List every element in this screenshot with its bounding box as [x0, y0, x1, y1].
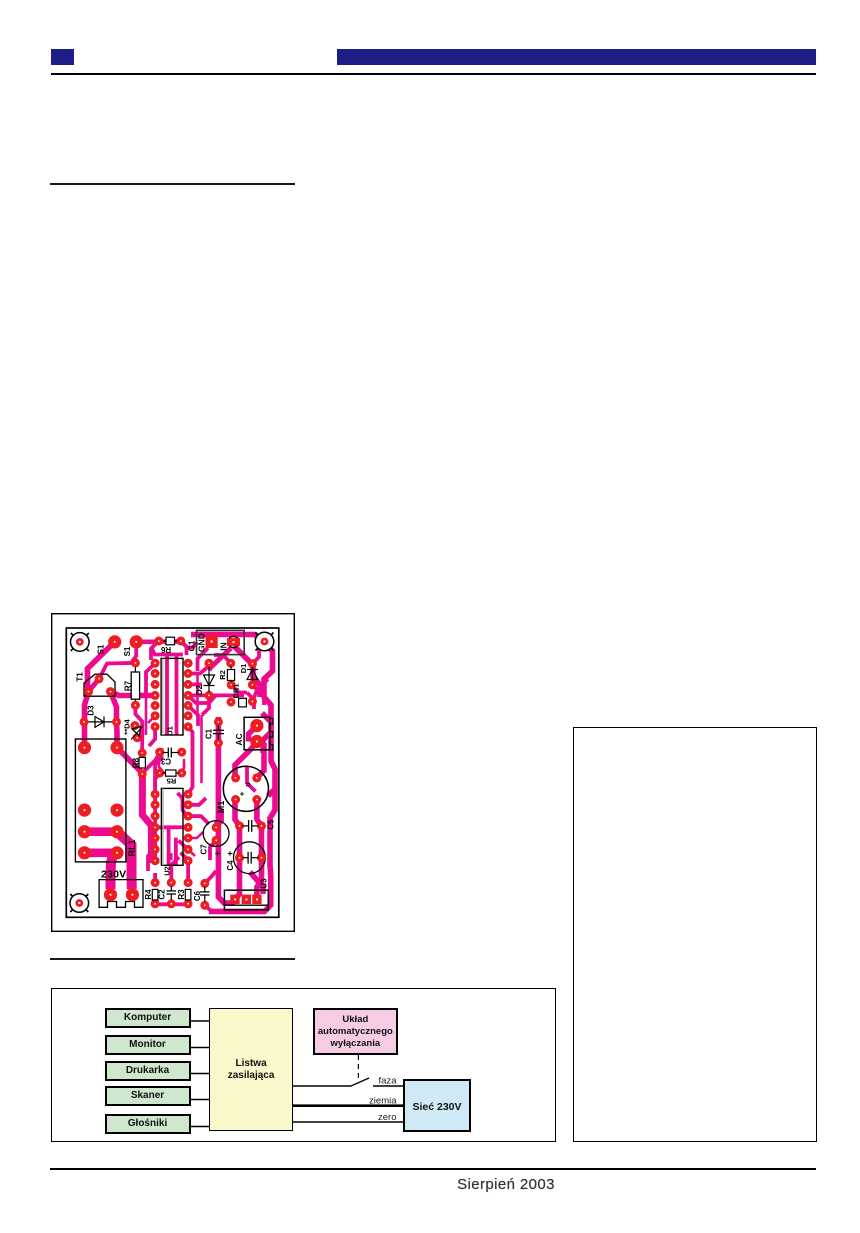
- svg-text:C2: C2: [158, 889, 167, 900]
- svg-text:C6: C6: [193, 890, 202, 901]
- svg-text:AC: AC: [234, 733, 244, 745]
- svg-text:+: +: [240, 790, 245, 799]
- svg-text:DR1: DR1: [232, 683, 241, 698]
- svg-text:GND: GND: [197, 633, 207, 652]
- svg-text:+: +: [225, 851, 235, 856]
- svg-text:M1: M1: [216, 801, 226, 814]
- svg-text:R5: R5: [167, 777, 177, 786]
- svg-text:C7: C7: [200, 844, 209, 855]
- svg-text:R7: R7: [124, 680, 133, 691]
- svg-text:D3: D3: [87, 705, 96, 716]
- svg-text:D1: D1: [239, 664, 248, 674]
- svg-text:S1: S1: [97, 644, 106, 654]
- svg-text:zero: zero: [378, 1112, 396, 1123]
- svg-text:R6: R6: [160, 645, 171, 654]
- svg-text:U3: U3: [260, 878, 269, 889]
- svg-text:R3: R3: [177, 889, 186, 900]
- svg-text:R4: R4: [144, 889, 153, 900]
- svg-text:U1: U1: [166, 726, 175, 736]
- svg-text:U2: U2: [163, 866, 172, 876]
- svg-text:IN: IN: [218, 642, 228, 651]
- svg-text:C4: C4: [226, 860, 235, 871]
- svg-text:230V: 230V: [101, 868, 126, 880]
- svg-text:R2: R2: [218, 670, 227, 680]
- svg-text:ziemia: ziemia: [369, 1096, 397, 1107]
- svg-text:T1: T1: [76, 672, 85, 682]
- svg-text:RL1: RL1: [127, 839, 137, 856]
- svg-text:D2: D2: [195, 684, 204, 695]
- svg-text:R8: R8: [132, 757, 141, 768]
- svg-text:C5: C5: [267, 819, 276, 830]
- svg-text:G1: G1: [187, 640, 196, 651]
- svg-text:**D4: **D4: [123, 718, 132, 734]
- svg-text:C3: C3: [160, 757, 171, 766]
- svg-text:+: +: [213, 851, 223, 856]
- svg-text:S1: S1: [123, 646, 132, 656]
- svg-text:C1: C1: [205, 728, 214, 739]
- svg-text:u: u: [245, 782, 252, 786]
- svg-text:faza: faza: [379, 1076, 398, 1087]
